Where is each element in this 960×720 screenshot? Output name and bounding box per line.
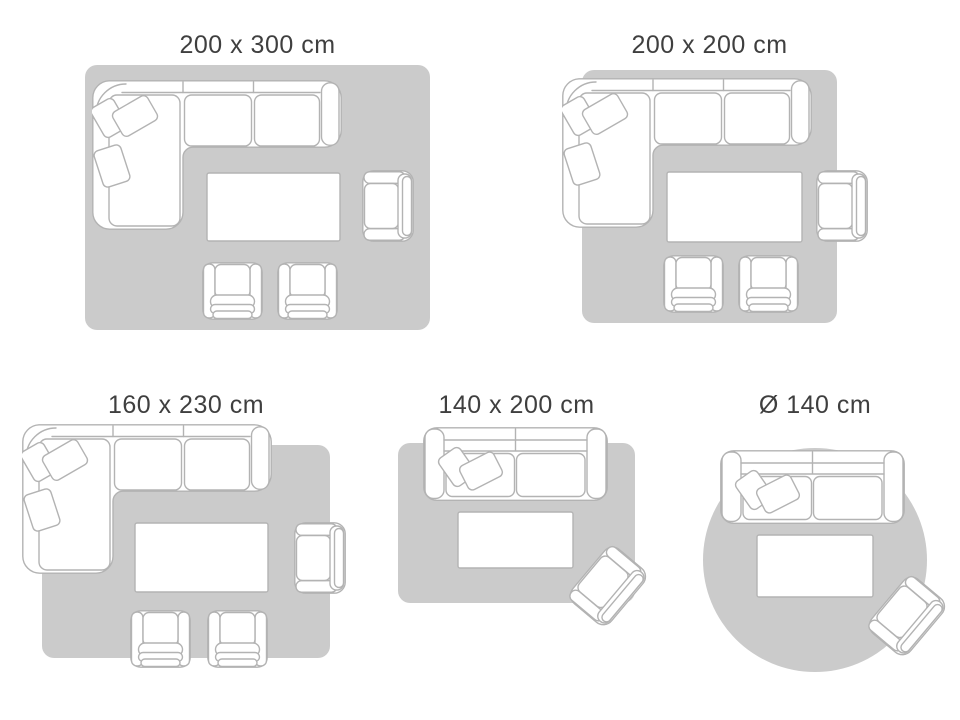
armchair-icon	[363, 171, 413, 241]
sofa-icon	[424, 428, 607, 501]
small-armchair-icon	[131, 611, 190, 667]
sofa-icon	[721, 451, 904, 524]
small-armchair-icon	[208, 611, 267, 667]
size-label-200x200: 200 x 200 cm	[582, 31, 837, 59]
small-armchair-icon	[278, 263, 337, 319]
rug-size-guide: 200 x 300 cm 200 x 200 cm 160 x 230 cm 1…	[0, 0, 960, 720]
coffee-table-icon	[458, 512, 573, 568]
armchair-icon	[295, 523, 345, 593]
scene-d140	[698, 424, 953, 676]
coffee-table-icon	[135, 523, 268, 592]
size-label-d140: Ø 140 cm	[703, 391, 927, 419]
small-armchair-icon	[739, 256, 798, 312]
size-label-140x200: 140 x 200 cm	[398, 391, 635, 419]
size-label-160x230: 160 x 230 cm	[42, 391, 330, 419]
coffee-table-icon	[207, 173, 340, 241]
size-label-200x300: 200 x 300 cm	[85, 31, 430, 59]
armchair-icon	[817, 171, 867, 241]
small-armchair-icon	[203, 263, 262, 319]
small-armchair-icon	[664, 256, 723, 312]
scene-160x230	[20, 420, 350, 675]
scene-200x200	[555, 65, 880, 330]
scene-140x200	[395, 424, 655, 634]
coffee-table-icon	[667, 172, 802, 242]
scene-200x300	[85, 65, 430, 335]
coffee-table-icon	[757, 535, 873, 597]
